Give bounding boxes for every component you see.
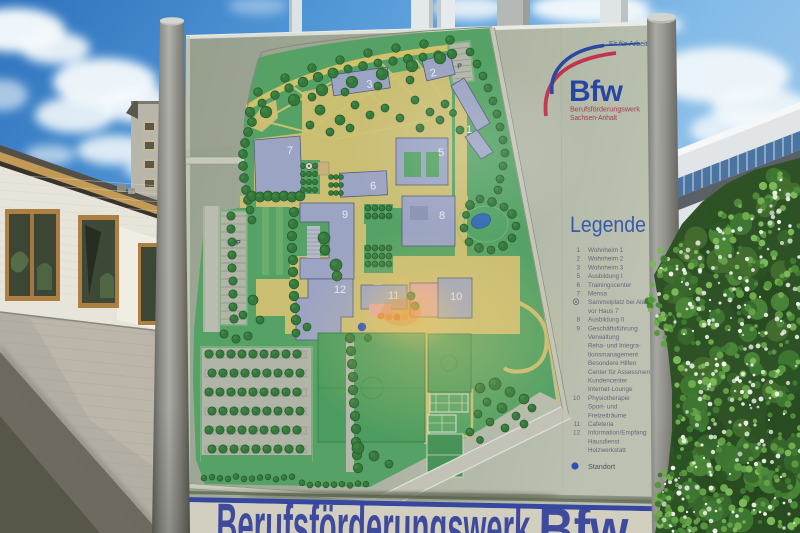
svg-text:Bfw: Bfw bbox=[538, 496, 629, 533]
svg-text:Berufsförderungswerk: Berufsförderungswerk bbox=[216, 491, 531, 533]
